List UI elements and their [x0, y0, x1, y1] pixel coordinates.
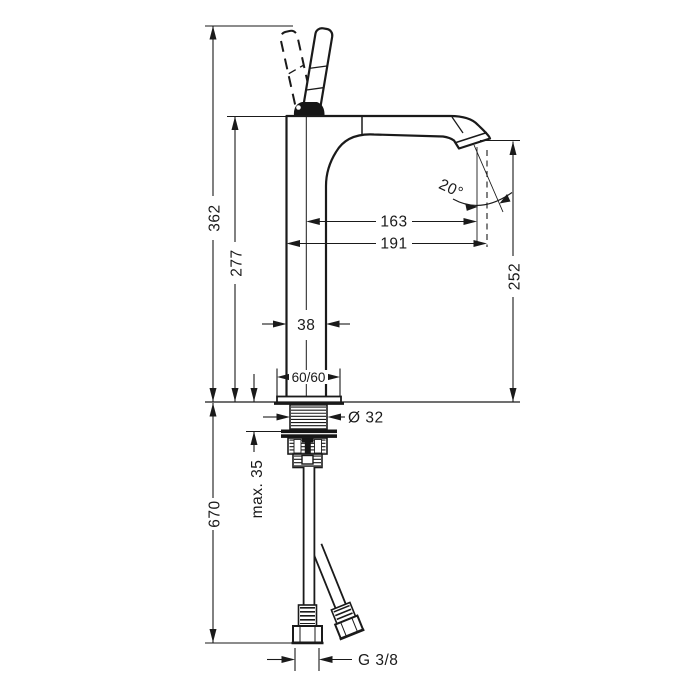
arrow-left — [326, 321, 340, 328]
hose-angled-edge-right — [321, 544, 346, 605]
dimension-252: 252 — [507, 142, 524, 402]
arrow-up — [232, 117, 239, 131]
arrow-right — [464, 218, 478, 225]
dim-163-label: 163 — [380, 214, 407, 231]
handle-dashed-joint-line — [288, 65, 305, 73]
dim-32-label: Ø 32 — [348, 410, 384, 427]
arrow-left — [319, 656, 333, 663]
dimension-277: 277 — [229, 117, 246, 402]
arrow-down — [251, 388, 258, 402]
nut-tee-bar — [302, 438, 314, 443]
arrow-down — [210, 388, 217, 402]
faucet-body-outline — [287, 116, 491, 397]
dim-20deg-label: 20° — [436, 176, 466, 202]
technical-drawing-page: 362 277 670 252 — [0, 0, 700, 700]
arrow-down — [210, 629, 217, 643]
spray-angle-annotation: 20° — [436, 145, 512, 247]
dimension-362: 362 — [207, 26, 224, 402]
dimension-38: 38 — [262, 317, 350, 334]
hose-straight-nut — [293, 626, 322, 643]
arrow-left — [328, 414, 342, 421]
arrow-up — [210, 403, 217, 417]
arrow-right — [327, 374, 341, 381]
arrow-up — [510, 142, 517, 156]
arrow-down — [232, 388, 239, 402]
collar-window — [302, 456, 313, 465]
dim-670-label: 670 — [207, 500, 224, 527]
arrow-left — [277, 374, 291, 381]
dim-38-label: 38 — [297, 317, 315, 334]
hose-straight-mask — [304, 467, 313, 605]
arc-arrow-left — [465, 203, 478, 211]
dim-277-label: 277 — [229, 249, 246, 276]
handle-outline — [303, 27, 334, 113]
arrow-right — [282, 656, 296, 663]
dimension-670: 670 — [207, 403, 224, 643]
arrow-down — [510, 388, 517, 402]
handle-solid-position — [303, 27, 334, 113]
arrow-right — [277, 414, 291, 421]
arrow-right — [273, 321, 287, 328]
nut-slot-right — [315, 440, 322, 454]
dim-252-label: 252 — [507, 263, 524, 290]
handle-pivot-highlight — [296, 105, 301, 110]
dimension-g38: G 3/8 — [267, 648, 398, 671]
spray-direction-line — [474, 145, 503, 212]
dim-6060-label: 60/60 — [292, 370, 326, 385]
nut-tee-stem — [305, 442, 311, 454]
dimension-163: 163 — [306, 214, 477, 231]
faucet-dimension-drawing: 362 277 670 252 — [0, 0, 700, 700]
flange-bar-upper — [281, 430, 337, 434]
arrow-right — [474, 240, 488, 247]
dim-max35-label: max. 35 — [249, 460, 266, 519]
nut-slot-left — [294, 440, 301, 454]
dim-191-label: 191 — [380, 236, 407, 253]
faucet-product — [274, 27, 490, 643]
arrow-up — [210, 26, 217, 40]
dim-362-label: 362 — [207, 204, 224, 231]
dim-g38-label: G 3/8 — [358, 652, 398, 669]
dimension-max35: max. 35 — [249, 374, 266, 518]
